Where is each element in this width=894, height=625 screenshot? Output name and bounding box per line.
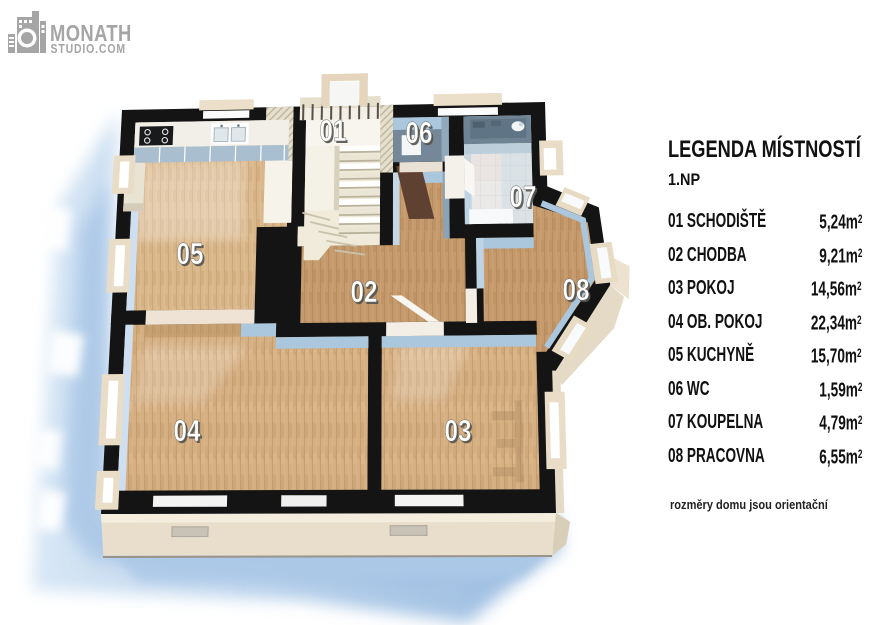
svg-text:02: 02 [351, 274, 378, 309]
svg-text:04: 04 [174, 413, 201, 448]
svg-text:06: 06 [406, 115, 433, 150]
svg-text:07: 07 [510, 179, 537, 214]
svg-text:STUDIO.COM: STUDIO.COM [51, 43, 126, 56]
svg-text:03: 03 [445, 413, 472, 448]
svg-text:05: 05 [177, 236, 204, 271]
svg-text:01: 01 [320, 113, 347, 148]
svg-text:08: 08 [563, 272, 590, 307]
